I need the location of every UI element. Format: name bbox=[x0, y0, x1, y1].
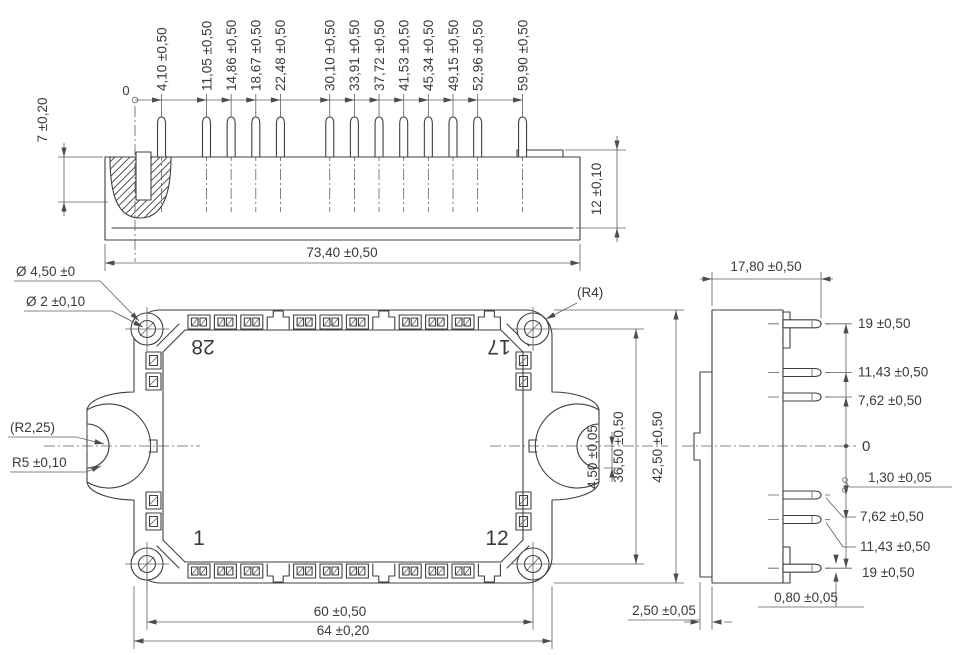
pin-row-label: 7,62 ±0,50 bbox=[860, 509, 924, 524]
hole-inner-dia-label: Ø 2 ±0,10 bbox=[26, 294, 85, 309]
pin-row-label: 19 ±0,50 bbox=[862, 565, 914, 580]
zero-reference-label: 0 bbox=[862, 438, 870, 455]
pin-position-label: 37,72 ±0,50 bbox=[372, 20, 387, 91]
pin-position-label: 45,34 ±0,50 bbox=[421, 20, 436, 91]
terminal-number-1: 1 bbox=[193, 527, 205, 550]
pin-width-label: 1,30 ±0,05 bbox=[868, 470, 932, 485]
pin-position-label: 33,91 ±0,50 bbox=[347, 20, 362, 91]
pin-row-label: 11,43 ±0,50 bbox=[860, 539, 930, 554]
plan-height-label: 42,50 ±0,50 bbox=[650, 411, 665, 482]
depth-label: 17,80 ±0,50 bbox=[730, 259, 801, 274]
terminal-number-17: 17 bbox=[487, 335, 510, 358]
body-height-label: 12 ±0,10 bbox=[589, 163, 604, 215]
terminal-number-28: 28 bbox=[191, 335, 214, 358]
pin-position-label: 11,05 ±0,50 bbox=[199, 21, 214, 91]
overall-width-label: 73,40 ±0,50 bbox=[306, 245, 377, 260]
corner-radius-label: (R4) bbox=[577, 285, 603, 300]
terminal-number-12: 12 bbox=[485, 527, 508, 550]
pin-thickness-label: 0,80 ±0,05 bbox=[774, 590, 838, 605]
notch-radius-label: R5 ±0,10 bbox=[12, 455, 67, 470]
pin-position-label: 22,48 ±0,50 bbox=[273, 20, 288, 91]
notch-radius-small-label: (R2,25) bbox=[10, 420, 55, 435]
plan-width-label: 64 ±0,20 bbox=[317, 623, 369, 638]
pin-position-label: 4,10 ±0,50 bbox=[154, 27, 169, 91]
pin-position-label: 30,10 ±0,50 bbox=[323, 20, 338, 91]
hole-pitch-horizontal-label: 60 ±0,50 bbox=[314, 604, 366, 619]
pin-position-label: 59,90 ±0,50 bbox=[515, 20, 530, 91]
technical-drawing-page: 04,10 ±0,5011,05 ±0,5014,86 ±0,5018,67 ±… bbox=[0, 0, 976, 655]
pin-row-label: 11,43 ±0,50 bbox=[858, 365, 928, 380]
top-view: 2817112Ø 4,50 ±0Ø 2 ±0,10(R2,25)R5 ±0,10… bbox=[8, 264, 684, 649]
pin-row-label: 7,62 ±0,50 bbox=[858, 393, 922, 408]
notch-offset-label: 4,50 ±0,05 bbox=[585, 425, 600, 489]
pin-position-label: 18,67 ±0,50 bbox=[249, 20, 264, 91]
pin-position-label: 41,53 ±0,50 bbox=[396, 20, 411, 91]
pin-row-label: 19 ±0,50 bbox=[858, 316, 910, 331]
flange-thickness-label: 2,50 ±0,05 bbox=[632, 603, 696, 618]
hole-outer-dia-label: Ø 4,50 ±0 bbox=[16, 264, 75, 279]
module-outline-drawing-canvas: 04,10 ±0,5011,05 ±0,5014,86 ±0,5018,67 ±… bbox=[0, 0, 976, 655]
front-view: 04,10 ±0,5011,05 ±0,5014,86 ±0,5018,67 ±… bbox=[35, 20, 626, 271]
origin-label: 0 bbox=[122, 83, 129, 98]
pin-position-label: 52,96 ±0,50 bbox=[470, 20, 485, 91]
pin-position-label: 14,86 ±0,50 bbox=[224, 20, 239, 91]
pin-position-label: 49,15 ±0,50 bbox=[446, 20, 461, 91]
hole-pitch-vertical-label: 36,50 ±0,50 bbox=[611, 411, 626, 482]
pin-height-label: 7 ±0,20 bbox=[35, 98, 50, 143]
